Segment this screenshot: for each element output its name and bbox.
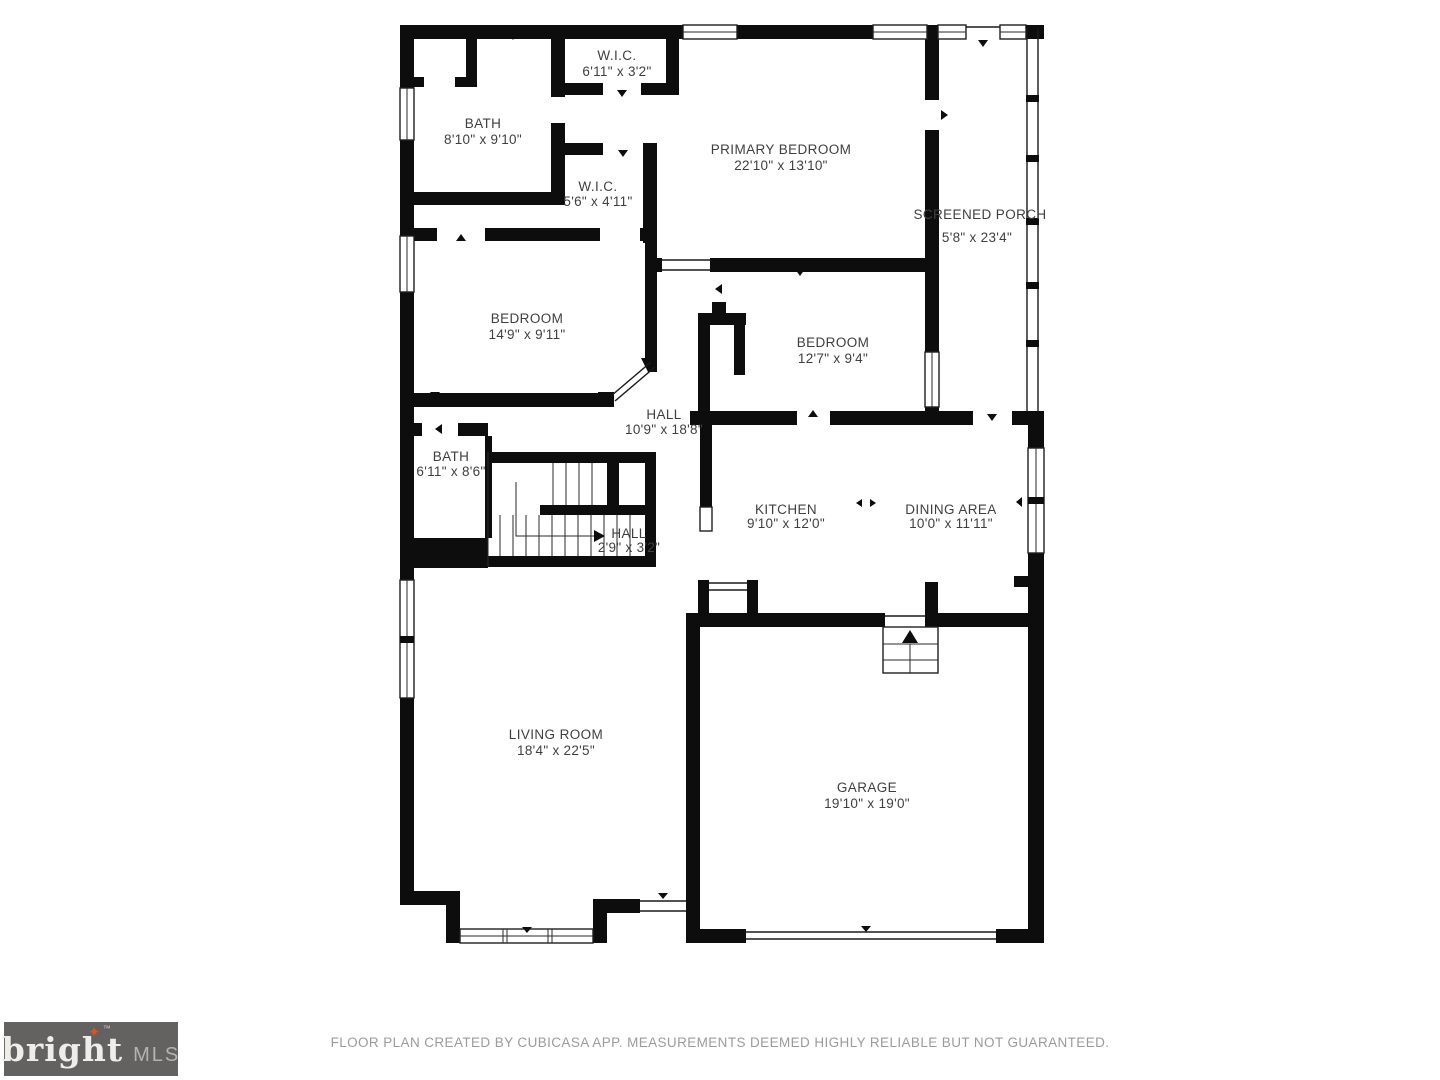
floor-plan-drawing: W.I.C. 6'11" x 3'2" BATH 8'10" x 9'10" P…	[0, 0, 1440, 1080]
room-dims-wic-top: 6'11" x 3'2"	[582, 64, 651, 79]
room-label-garage: GARAGE	[837, 780, 897, 795]
window-porch-top-1	[938, 25, 966, 39]
room-label-primary-bedroom: PRIMARY BEDROOM	[711, 142, 852, 157]
logo-brand-text: bright	[2, 1030, 123, 1069]
room-dims-primary-bedroom: 22'10" x 13'10"	[734, 158, 828, 173]
room-dims-bath-top: 8'10" x 9'10"	[444, 132, 522, 147]
room-label-living-room: LIVING ROOM	[509, 727, 603, 742]
window-bath1-left	[400, 88, 414, 140]
window-porch-top-2	[1000, 25, 1026, 39]
window-top-2	[873, 25, 927, 39]
room-dims-dining-area: 10'0" x 11'11"	[909, 516, 993, 531]
arrow-icon	[795, 269, 805, 276]
logo-tm-mark: ™	[103, 1024, 111, 1033]
room-dims-garage: 19'10" x 19'0"	[824, 796, 910, 811]
room-label-hall: HALL	[646, 407, 681, 422]
room-label-dining-area: DINING AREA	[905, 502, 996, 517]
room-dims-screened-porch: 5'8" x 23'4"	[942, 230, 1012, 245]
room-dims-bedroom-left: 14'9" x 9'11"	[489, 327, 566, 342]
arrow-icon	[987, 414, 997, 421]
arrow-icon	[808, 410, 818, 417]
room-dims-living-room: 18'4" x 22'5"	[517, 743, 595, 758]
arrow-icon	[861, 926, 871, 932]
arrow-icon	[658, 893, 668, 899]
arrow-icon	[715, 284, 722, 294]
window-dining-right	[1028, 448, 1044, 553]
windows	[400, 25, 1044, 943]
arrow-icon	[456, 234, 466, 241]
window-top-1	[683, 25, 737, 39]
window-living-left	[400, 580, 414, 698]
room-label-screened-porch: SCREENED PORCH	[913, 207, 1046, 222]
window-bedroom1-left	[400, 236, 414, 292]
arrow-icon	[978, 40, 988, 47]
walls	[400, 25, 1044, 943]
window-bedroom2-right	[925, 352, 939, 407]
arrow-icon	[618, 150, 628, 157]
room-dims-wic-2: 5'6" x 4'11"	[563, 194, 632, 209]
room-dims-bath-2: 6'11" x 8'6"	[416, 464, 485, 479]
logo-star-icon: ✦	[88, 1023, 101, 1041]
room-dims-hall: 10'9" x 18'8"	[625, 422, 703, 437]
arrow-icon	[941, 110, 948, 120]
cased-opening-primary	[662, 260, 710, 270]
bright-mls-logo-inner: bright✦™MLS	[2, 1030, 180, 1069]
arrow-icon	[617, 90, 627, 97]
disclaimer-text: FLOOR PLAN CREATED BY CUBICASA APP. MEAS…	[0, 1035, 1440, 1050]
floor-plan-page: W.I.C. 6'11" x 3'2" BATH 8'10" x 9'10" P…	[0, 0, 1440, 1080]
room-dims-kitchen: 9'10" x 12'0"	[747, 516, 825, 531]
room-label-wic-top: W.I.C.	[597, 48, 636, 63]
logo-mls-text: MLS	[133, 1044, 180, 1066]
room-label-bath-2: BATH	[433, 449, 470, 464]
room-label-bath-top: BATH	[465, 116, 502, 131]
room-label-bedroom-right: BEDROOM	[797, 335, 870, 350]
room-dims-bedroom-right: 12'7" x 9'4"	[798, 351, 868, 366]
room-label-wic-2: W.I.C.	[578, 179, 617, 194]
arrow-icon	[856, 499, 862, 507]
garage-door	[746, 932, 996, 939]
room-label-bedroom-left: BEDROOM	[491, 311, 564, 326]
arrow-icon	[435, 424, 442, 434]
room-label-kitchen: KITCHEN	[755, 502, 817, 517]
room-dims-hall-2: 2'9" x 3'2"	[598, 540, 660, 555]
room-labels: W.I.C. 6'11" x 3'2" BATH 8'10" x 9'10" P…	[416, 48, 1046, 811]
front-door	[640, 901, 686, 911]
staircase-garage-entry	[883, 627, 938, 673]
arrow-icon	[1016, 497, 1022, 507]
room-label-hall-2: HALL	[611, 526, 646, 541]
bright-mls-logo: bright✦™MLS	[4, 1022, 178, 1076]
arrow-icon	[870, 499, 876, 507]
